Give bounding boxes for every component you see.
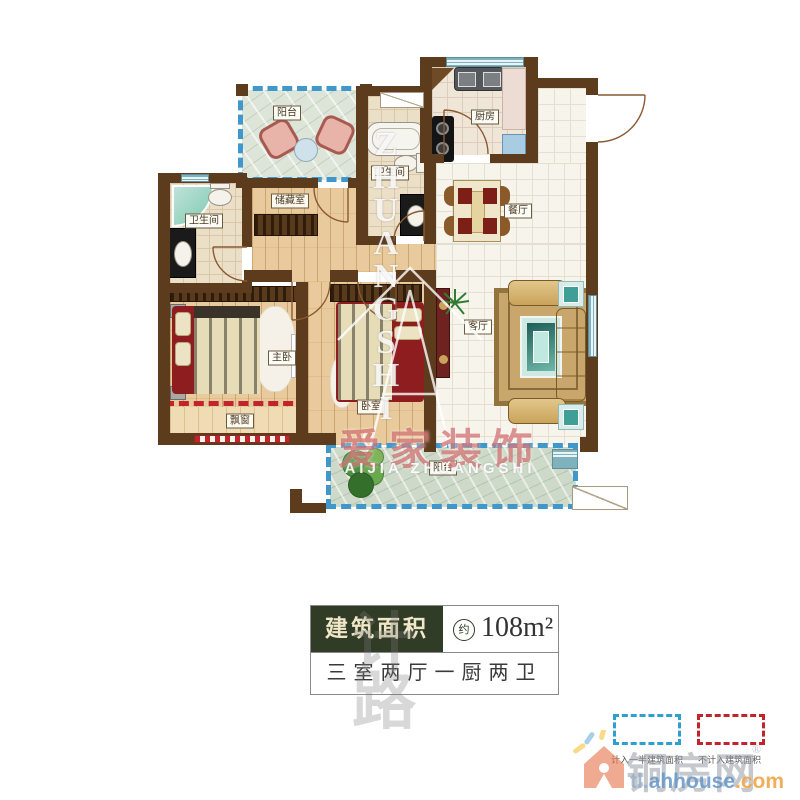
- room-label-master-bedroom: 主卧: [268, 351, 296, 366]
- site-url-domain: ahhouse: [649, 770, 735, 793]
- site-logo-icon: [570, 730, 630, 792]
- site-url: tl.ahhouse.com: [630, 770, 784, 794]
- approx-badge: 约: [453, 619, 475, 641]
- area-value: 108m²: [481, 612, 553, 644]
- layout-summary: 三室两厅一厨两卫: [311, 653, 558, 693]
- room-label-dining: 餐厅: [504, 204, 532, 219]
- site-url-prefix: tl.: [630, 770, 649, 793]
- area-info-box: 建筑面积 约 108m² 三室两厅一厨两卫: [310, 605, 559, 695]
- watermark-brand-en: AIJIA ZHUANGSHI: [300, 460, 580, 477]
- floor-plan-page: 阳台 厨房 卫生间 卫生间 储藏室 餐厅 客厅 主卧 卧室 飘窗 阳台 Z H …: [0, 0, 800, 800]
- room-label-bay-window: 飘窗: [226, 414, 254, 429]
- room-label-kitchen: 厨房: [471, 110, 499, 125]
- room-label-balcony-top: 阳台: [273, 106, 301, 121]
- room-label-bathroom2: 卫生间: [185, 214, 223, 229]
- registered-mark: ®: [752, 742, 761, 757]
- area-row: 建筑面积 约 108m²: [311, 606, 558, 653]
- site-url-tld: .com: [735, 770, 784, 793]
- room-label-storage: 储藏室: [271, 194, 309, 209]
- faint-watermark-glyph: 路: [352, 650, 416, 742]
